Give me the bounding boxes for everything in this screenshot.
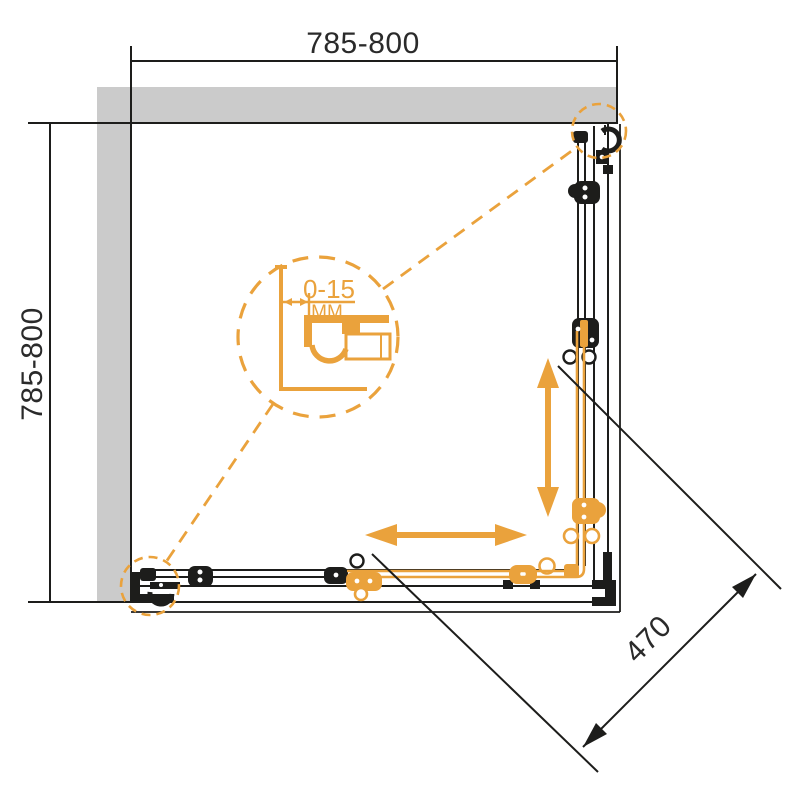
roller-wheel-orange	[585, 529, 599, 543]
hardware-mid-right	[564, 318, 600, 364]
profile-bar	[150, 582, 180, 589]
slide-direction-arrows	[365, 358, 559, 546]
roller-hole	[583, 186, 588, 191]
corner-post	[603, 552, 612, 582]
wall-left	[97, 87, 131, 602]
detail-profile-left-bar	[304, 315, 312, 347]
detail-profile-block	[346, 334, 390, 359]
detail-dim-arrow-left	[284, 298, 292, 306]
screw-hole	[159, 583, 163, 587]
roller-hole	[582, 515, 587, 520]
shower-enclosure-plan-svg: 785-800 785-800	[0, 0, 800, 800]
hook-foot	[603, 165, 613, 174]
door-corner-bracket	[564, 564, 579, 578]
roller-hole	[355, 579, 360, 584]
roller-hole	[198, 578, 203, 583]
roller-wheel-orange	[564, 529, 578, 543]
horizontal-slide-arrow-icon	[365, 524, 527, 546]
detail-content: 0-15 MM	[275, 267, 390, 389]
detail-adjustment-label: 0-15	[303, 274, 355, 304]
vertical-slide-arrow-icon	[537, 358, 559, 517]
detail-profile-hook	[312, 345, 346, 361]
bottom-roller-bracket	[188, 566, 213, 587]
dimension-left: 785-800	[16, 123, 50, 602]
bottom-door-end-cap	[140, 568, 156, 581]
wall-top	[97, 87, 618, 124]
wall-hook-profile	[602, 129, 619, 151]
detail-leader-line-top	[383, 147, 577, 289]
roller-wheel-orange	[355, 588, 367, 600]
detail-profile-step	[342, 323, 360, 334]
corner-block	[592, 580, 616, 606]
door-roller-bulge	[590, 502, 606, 518]
roller-hole	[576, 327, 581, 332]
right-door-top-cap	[573, 131, 588, 143]
roller-hole	[583, 195, 588, 200]
roller-hole	[198, 570, 203, 575]
roller-hole	[334, 573, 339, 578]
top-roller-bulge	[568, 184, 582, 198]
technical-drawing-canvas: 785-800 785-800	[0, 0, 800, 800]
detail-profile-top-bar	[306, 315, 389, 323]
dim-label-top: 785-800	[306, 27, 420, 60]
hardware-bottom-right	[503, 559, 555, 590]
dim-label-left: 785-800	[16, 307, 49, 421]
roller-hole	[582, 503, 587, 508]
detail-leader-line-bottom	[166, 404, 273, 562]
roller-hole	[590, 338, 595, 343]
roller-wheel	[351, 555, 364, 568]
walls	[97, 87, 618, 602]
roller-hole	[368, 579, 373, 584]
roller-wheel	[564, 351, 577, 364]
diag-extension-upper	[558, 366, 781, 589]
